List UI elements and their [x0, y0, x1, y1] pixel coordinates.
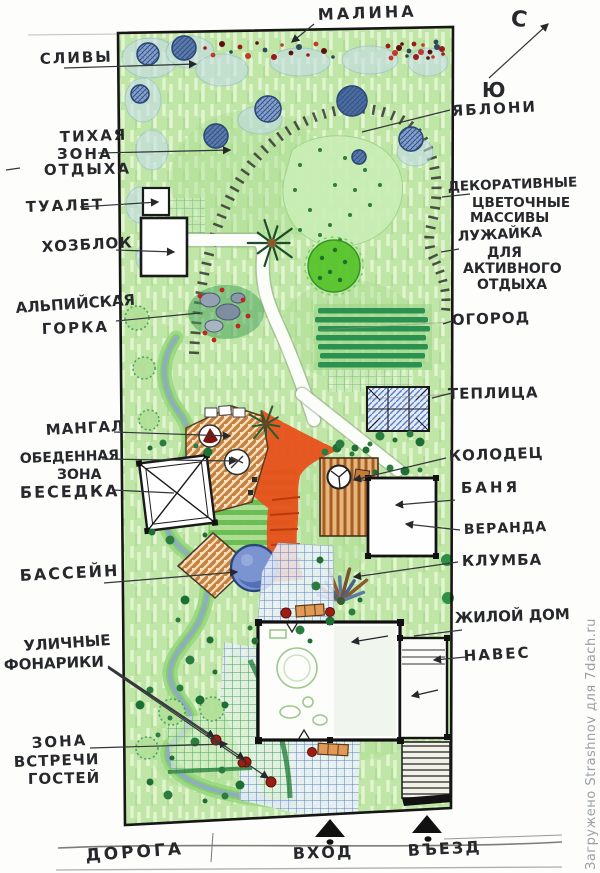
bush-dot [336, 440, 345, 449]
label-lawn: АКТИВНОГО [463, 261, 562, 277]
label-greenhouse: ТЕПЛИЦА [448, 383, 539, 403]
berry-dot [219, 41, 225, 47]
label-canopy: НАВЕС [463, 644, 531, 665]
label-dining-zone: ОБЕДЕННАЯ [20, 448, 120, 467]
berry-dot [238, 45, 243, 50]
bush-dot [148, 446, 153, 451]
bush-dot [312, 582, 321, 591]
planting-dot [353, 188, 357, 192]
bush-dot [349, 609, 356, 616]
planting-dot [328, 223, 332, 227]
label-street-lamps: УЛИЧНЫЕ [23, 631, 111, 655]
utility-building [141, 218, 187, 276]
label-quiet-zone: ТИХАЯ [60, 126, 128, 146]
label-lawn: ДЛЯ [487, 245, 522, 261]
garden-plan-sketch: МАЛИНА СЛИВЫ С Ю ЯБЛОНИ ТИХАЯ ЗОНА ОТДЫХ… [0, 0, 600, 873]
berry-dot [400, 42, 404, 46]
bush-dot [160, 440, 167, 447]
label-street-lamps: ФОНАРИКИ [4, 653, 105, 674]
bush-dot [236, 781, 245, 790]
bush-dot [368, 442, 373, 447]
bush-dot [317, 557, 324, 564]
lawn-dot [333, 248, 337, 252]
bush-dot [176, 618, 181, 623]
berry-dot [289, 51, 294, 56]
berry-dot [255, 41, 259, 45]
bush-dot [308, 639, 313, 644]
bush-dot [350, 452, 355, 457]
bush-dot [393, 438, 398, 443]
berry-dot [306, 53, 310, 57]
berry-dot [439, 46, 445, 52]
bush-dot [326, 617, 335, 626]
label-alpine: АЛЬПИЙСКАЯ [15, 290, 136, 317]
label-decorative: ЦВЕТОЧНЫЕ [472, 195, 570, 211]
berry-dot [426, 56, 430, 60]
lawn-dot [318, 276, 322, 280]
berry-dot [245, 53, 251, 59]
label-gazebo: БЕСЕДКА [20, 481, 120, 502]
flower-dot [198, 294, 203, 299]
berry-dot [434, 40, 439, 45]
berry-dot [271, 54, 277, 60]
lounger [205, 408, 217, 417]
bush-dot [213, 670, 218, 675]
bush-dot [194, 444, 199, 449]
label-road: ДОРОГА [85, 839, 185, 866]
berry-dot [386, 44, 391, 49]
planting-dot [308, 208, 312, 212]
flower-dot [236, 324, 241, 329]
drive-in-arrow [412, 815, 442, 842]
bush-dot [203, 799, 208, 804]
berry-dot [413, 54, 419, 60]
site-plan-drawing: МАЛИНА СЛИВЫ С Ю ЯБЛОНИ ТИХАЯ ЗОНА ОТДЫХ… [0, 0, 600, 873]
apple-tree [399, 127, 423, 151]
label-plums: СЛИВЫ [40, 47, 114, 68]
bush-dot [186, 656, 195, 665]
label-guest-zone: ВСТРЕЧИ [14, 750, 100, 771]
tree [204, 124, 228, 148]
compass-north: С [509, 6, 528, 33]
berry-dot [441, 52, 445, 56]
berry-dot [407, 49, 412, 54]
bush-dot [136, 701, 145, 710]
bush-dot [222, 702, 229, 709]
entrance-arrow [315, 819, 345, 845]
bench [296, 604, 325, 617]
bush-dot [177, 685, 184, 692]
bush-dot [147, 779, 154, 786]
bush-dot [164, 791, 173, 800]
berry-dot [321, 48, 327, 54]
watermark: Загружено Strashnov для 7dach.ru [584, 582, 599, 870]
label-pool: БАССЕЙН [19, 561, 120, 585]
house [255, 619, 404, 744]
bush-dot [166, 536, 175, 545]
bush-dot [222, 793, 229, 800]
well [328, 466, 351, 489]
planting-dot [348, 213, 352, 217]
bush-dot [373, 470, 378, 475]
driveway-ramp [402, 742, 452, 806]
bush-dot [219, 767, 226, 774]
label-well: КОЛОДЕЦ [449, 444, 544, 465]
berry-dot [428, 50, 433, 55]
toilet-building [143, 188, 169, 215]
flower-dot [246, 314, 251, 319]
bush-dot [149, 529, 156, 536]
berry-dot [203, 46, 207, 50]
berry-dot [229, 50, 233, 54]
berry-dot [396, 45, 402, 51]
lawn-dot [343, 260, 347, 264]
label-veranda: ВЕРАНДА [464, 519, 548, 538]
berry-dot [280, 43, 284, 47]
flower-dot [203, 331, 208, 336]
lawn-dot [328, 270, 332, 274]
berry-dot [331, 55, 335, 59]
quiet-zone-planting [283, 136, 403, 247]
bush-dot [358, 598, 363, 603]
bush-dot [204, 448, 213, 457]
berry-dot [421, 43, 425, 47]
label-entrance: ВХОД [292, 842, 353, 863]
lawn-dot [320, 256, 324, 260]
label-lawn: ОТДЫХА [477, 277, 547, 293]
bush-dot [207, 637, 214, 644]
bush-dot [170, 756, 175, 761]
berry-dot [211, 53, 216, 58]
berry-dot [431, 55, 435, 59]
bush-dot [376, 432, 385, 441]
label-bbq: МАНГАЛ [45, 417, 125, 439]
label-vegetable-garden: ОГОРОД [452, 308, 531, 329]
label-guest-zone: ЗОНА [31, 731, 87, 752]
planting-dot [298, 228, 302, 232]
berry-dot [314, 42, 319, 47]
label-dining-zone: ЗОНА [57, 467, 102, 483]
label-drive-in: ВЪЕЗД [407, 837, 482, 860]
flower-dot [212, 338, 217, 343]
bush-dot [168, 716, 173, 721]
planting-dot [378, 183, 382, 187]
berry-dot [389, 56, 394, 61]
plum-tree [172, 36, 196, 60]
planting-dot [343, 156, 347, 160]
bush-dot [407, 431, 414, 438]
plum-tree [137, 43, 159, 65]
planting-dot [298, 163, 302, 167]
planting-dot [363, 168, 367, 172]
bathhouse [365, 475, 439, 559]
planting-dot [333, 183, 337, 187]
bench [318, 743, 349, 756]
label-house: ЖИЛОЙ ДОМ [454, 604, 570, 627]
bush-dot [252, 638, 259, 645]
berry-dot [296, 44, 302, 50]
tree [352, 150, 366, 164]
label-bathhouse: БАНЯ [461, 478, 520, 497]
bush-dot [156, 733, 161, 738]
bush-dot [181, 596, 190, 605]
berry-dot [405, 54, 409, 58]
label-raspberry: МАЛИНА [317, 2, 416, 24]
berry-dot [263, 48, 268, 53]
bush-dot [416, 438, 425, 447]
bush-dot [203, 533, 208, 538]
label-decorative: ДЕКОРАТИВНЫЕ [448, 174, 578, 195]
bush-dot [196, 696, 205, 705]
label-toilet: ТУАЛЕТ [26, 195, 105, 216]
label-lawn: ЛУЖАЙКА [457, 224, 542, 245]
greenhouse [367, 387, 429, 431]
berry-dot [392, 50, 398, 56]
label-guest-zone: ГОСТЕЙ [28, 768, 101, 788]
berry-dot [418, 49, 424, 55]
canopy [397, 635, 450, 740]
label-quiet-zone: ОТДЫХА [44, 159, 131, 179]
flower-dot [241, 298, 246, 303]
plum-tree [131, 85, 149, 103]
berry-dot [412, 42, 417, 47]
lounger [233, 408, 245, 417]
bush-dot [418, 468, 423, 473]
label-alpine: ГОРКА [42, 318, 110, 338]
tree [255, 96, 281, 122]
label-flowerbed: КЛУМБА [462, 551, 543, 570]
gazebo [136, 452, 218, 534]
label-decorative: МАССИВЫ [470, 210, 549, 226]
bush-dot [322, 449, 329, 456]
lounger [219, 406, 232, 416]
bush-dot [248, 626, 253, 631]
lawn-dot [338, 278, 342, 282]
label-apple-trees: ЯБЛОНИ [451, 98, 537, 120]
planting-dot [293, 188, 297, 192]
planting-dot [318, 148, 322, 152]
planting-dot [368, 203, 372, 207]
vegetable-garden [314, 304, 432, 370]
bush-dot [352, 445, 359, 452]
flower-dot [220, 288, 225, 293]
bush-dot [296, 626, 305, 635]
bush-dot [363, 447, 370, 454]
planting-dot [318, 233, 322, 237]
apple-tree [337, 86, 367, 116]
